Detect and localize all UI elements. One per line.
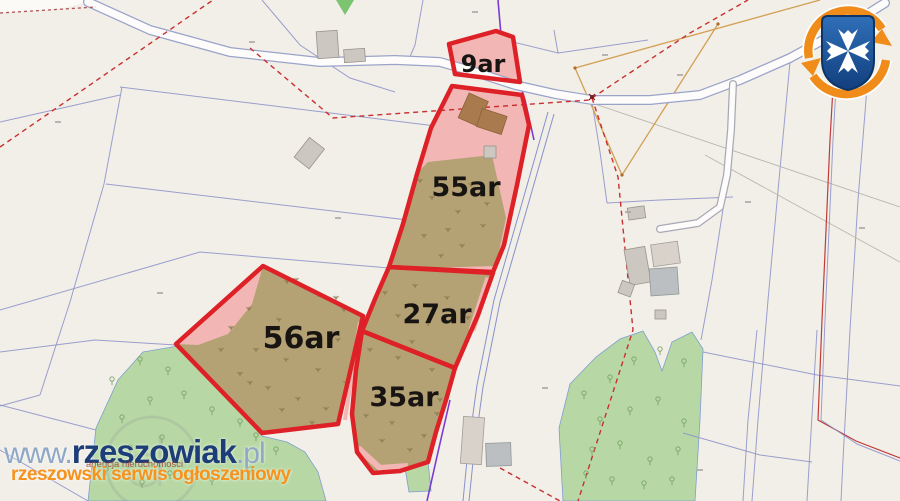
parcel-label-9ar: 9ar [461, 50, 506, 78]
map-tick [472, 11, 478, 13]
map-canvas: 9ar 55ar 27ar 35ar 56ar [0, 0, 900, 501]
cadastral-map-screenshot: 9ar 55ar 27ar 35ar 56ar [0, 0, 900, 501]
map-tick [697, 469, 703, 471]
map-tick [602, 54, 608, 56]
map-tick [335, 217, 341, 219]
building [655, 310, 666, 319]
map-tick [55, 121, 61, 123]
city-crest-icon [822, 16, 874, 90]
map-tick [249, 41, 255, 43]
parcel-label-56ar: 56ar [263, 321, 340, 356]
parcel-label-27ar: 27ar [402, 299, 472, 330]
building [484, 146, 496, 158]
map-tick [859, 227, 865, 229]
building [316, 30, 339, 58]
building [651, 241, 681, 267]
map-tick [625, 211, 631, 213]
building [486, 443, 512, 467]
parcel-label-35ar: 35ar [369, 382, 439, 413]
map-tick [157, 292, 163, 294]
building [627, 206, 646, 220]
map-tick [542, 387, 548, 389]
parcel-label-55ar: 55ar [431, 172, 501, 203]
building [344, 48, 366, 62]
building [460, 416, 484, 464]
map-tick [745, 201, 751, 203]
building [649, 267, 679, 296]
map-tick [677, 74, 683, 76]
